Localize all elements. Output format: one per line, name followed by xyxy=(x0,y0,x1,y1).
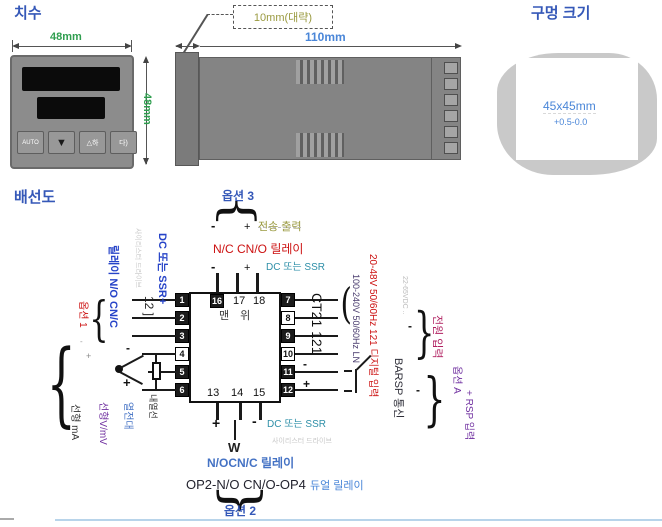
vent-slots-top xyxy=(296,60,344,84)
front-height-label: 48mm xyxy=(141,93,153,125)
sensor-label-rtd: 내열선 xyxy=(147,394,157,419)
wire xyxy=(142,353,176,355)
dc-supply-note: 22-65VDC .. xyxy=(400,276,408,315)
leader-line-dashed xyxy=(207,14,233,15)
wire xyxy=(155,380,157,390)
wire xyxy=(344,370,352,372)
opt3-plus: + xyxy=(244,221,250,233)
terminal-5: 5 xyxy=(175,365,189,379)
dc-ssr-bottom-label: DC 또는 SSR xyxy=(267,419,326,430)
down-button: ▼ xyxy=(48,131,75,154)
terminal-10: 10 xyxy=(281,347,295,361)
opt3-minus-2: - xyxy=(211,260,215,274)
option1-brace: { xyxy=(90,292,108,346)
button-row: AUTO ▼ △하 다) xyxy=(17,131,137,154)
front-width-dim-line xyxy=(14,46,130,47)
sensor-label-thermocouple: 열전대 xyxy=(122,402,133,430)
relay-output-label: 릴레이 N/O CN/C xyxy=(107,245,119,328)
bottom-plus: + xyxy=(212,416,220,431)
terminal-4: 4 xyxy=(175,347,189,361)
power-brace: } xyxy=(416,303,432,361)
rear-terminal xyxy=(444,142,458,154)
load-symbol: W xyxy=(228,441,240,455)
wire xyxy=(256,273,259,293)
arrow-left-icon xyxy=(175,43,182,49)
dual-relay-label: 듀얼 릴레이 xyxy=(310,480,364,492)
terminal-13: 13 xyxy=(207,387,219,399)
wiring-title: 배선도 xyxy=(14,190,55,207)
option1-label: 옵션 1 xyxy=(77,301,88,328)
terminal-14: 14 xyxy=(231,387,243,399)
up-button: △하 xyxy=(79,131,106,154)
dc-ssr-top-label: DC 또는 SSR xyxy=(266,262,325,273)
datasheet-page: 치수 구멍 크기 배선도 AUTO ▼ △하 다) 48mm 48mm 110m… xyxy=(0,0,662,527)
terminal-7: 7 xyxy=(281,293,295,307)
dc-ssr-plus-label: DC 또는 SSR+ xyxy=(156,233,168,304)
rsp-input-label: + RSP 입력 xyxy=(463,390,474,440)
terminal-17: 17 xyxy=(233,295,245,307)
side-length-label: 110mm xyxy=(302,31,349,44)
hole-size-label: 45x45mm xyxy=(543,100,596,114)
right-plus: + xyxy=(303,378,310,391)
rear-terminal xyxy=(444,78,458,90)
side-view-bezel xyxy=(175,52,199,166)
bottom-minus: - xyxy=(252,414,257,429)
terminal-2: 2 xyxy=(175,311,189,325)
arrow-up-icon xyxy=(143,56,149,63)
terminal-9: 9 xyxy=(281,329,295,343)
terminal-15: 15 xyxy=(253,387,265,399)
wire xyxy=(239,403,242,420)
arrow-left-icon xyxy=(12,43,19,49)
thyristor-note-left: 사이리스터 드라이브 xyxy=(133,228,141,288)
sensor-label-linear-ma: 선형 mA xyxy=(69,404,80,440)
terminal-6: 6 xyxy=(175,383,189,397)
terminal-3: 3 xyxy=(175,329,189,343)
divider-stub xyxy=(0,518,14,520)
terminal-11: 11 xyxy=(281,365,295,379)
depth-note-label: 10mm(대략) xyxy=(254,9,312,25)
wire xyxy=(142,389,176,391)
right-minus: - xyxy=(303,358,307,371)
auto-set-button: AUTO xyxy=(17,131,44,154)
terminal-1: 1 xyxy=(175,293,189,307)
rtd-resistor-symbol xyxy=(152,362,161,380)
nc-relay-label: N/C CN/O 릴레이 xyxy=(213,243,303,256)
optionA-label: 옵션 A xyxy=(451,366,462,394)
terminal-8: 8 xyxy=(281,311,295,325)
length-dim-line xyxy=(200,46,458,47)
option2-label: 옵션 2 xyxy=(224,505,256,518)
wire xyxy=(216,273,219,293)
no-relay-label: N/OCN/C 릴레이 xyxy=(207,457,294,470)
display-lower xyxy=(37,97,105,119)
power-input-label: 전원 입력 xyxy=(431,315,443,359)
rsp-minus: - xyxy=(416,384,420,397)
bottom-divider xyxy=(55,519,662,521)
enter-button: 다) xyxy=(110,131,137,154)
rear-terminal xyxy=(444,62,458,74)
ext-line xyxy=(131,40,132,52)
opt3-plus-2: + xyxy=(244,262,250,274)
sensor-plus: + xyxy=(123,376,131,390)
wire xyxy=(132,335,176,337)
terminal-12: 12 xyxy=(281,383,295,397)
wire xyxy=(132,317,176,319)
optionA-brace: } xyxy=(426,368,442,430)
terminal-16: 16 xyxy=(210,294,224,308)
supply-label: 20-48V 50/60Hz 121 디지털 입력 xyxy=(367,254,378,397)
terminal-section-divider xyxy=(431,58,432,159)
ext-line xyxy=(12,40,13,52)
vent-slots-bottom xyxy=(296,133,344,157)
depth-note-box: 10mm(대략) xyxy=(233,5,333,29)
mains-label: 100-240V 50/60Hz LN xyxy=(350,274,360,363)
comm-label: BARSP 통신 xyxy=(392,358,404,418)
wire xyxy=(295,371,338,373)
terminal-block-top-label: 맨 위 xyxy=(219,310,254,322)
arrow-right-icon xyxy=(193,43,200,49)
thyristor-note-bottom: 사이리스터 드라이브 xyxy=(272,438,332,446)
option3-brace: { xyxy=(212,198,264,224)
arrow-right-icon xyxy=(455,43,462,49)
power-minus: - xyxy=(408,320,412,333)
rear-terminal xyxy=(444,126,458,138)
tiny-plus-mark: + xyxy=(86,352,91,362)
rear-terminal xyxy=(444,94,458,106)
model-label: CT21 121 xyxy=(309,293,324,354)
wire xyxy=(234,420,236,440)
opt3-minus: - xyxy=(211,219,215,233)
bracket-12-label: 12 ] xyxy=(142,296,155,316)
wire xyxy=(155,354,157,362)
wire xyxy=(236,273,239,293)
wire xyxy=(295,389,338,391)
wire xyxy=(259,403,262,420)
dimensions-title: 치수 xyxy=(14,6,42,23)
wire xyxy=(120,355,144,369)
display-upper xyxy=(22,67,120,91)
front-width-label: 48mm xyxy=(50,31,82,43)
sensor-label-linear-v: 선형V/mV xyxy=(97,402,108,445)
rear-terminal xyxy=(444,110,458,122)
hole-size-title: 구멍 크기 xyxy=(531,6,590,23)
arrow-down-icon xyxy=(143,158,149,165)
wire xyxy=(355,369,357,393)
transfer-output-label: 전송 출력 xyxy=(258,221,302,233)
controller-front-panel: AUTO ▼ △하 다) xyxy=(10,55,134,169)
terminal-18: 18 xyxy=(253,295,265,307)
sensor-minus: - xyxy=(126,342,130,355)
tiny-minus-mark: - xyxy=(80,338,83,347)
wire xyxy=(344,390,352,392)
hole-tolerance-label: +0.5-0.0 xyxy=(554,118,587,128)
